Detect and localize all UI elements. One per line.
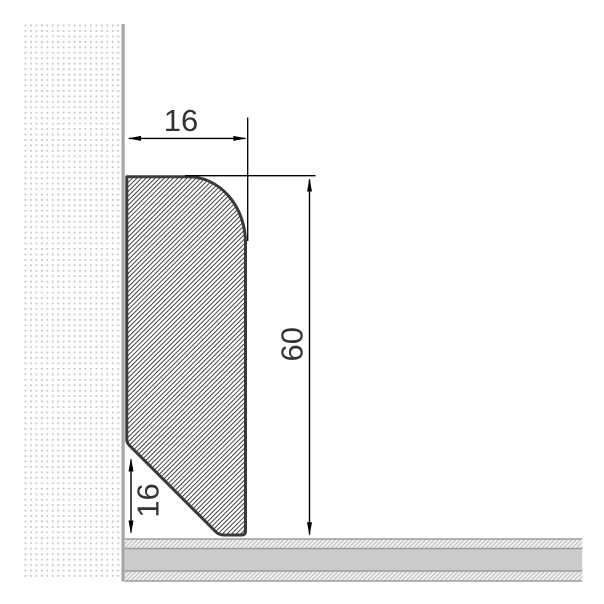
svg-text:16: 16 <box>131 483 166 517</box>
svg-text:16: 16 <box>164 103 198 138</box>
svg-text:60: 60 <box>275 327 310 361</box>
